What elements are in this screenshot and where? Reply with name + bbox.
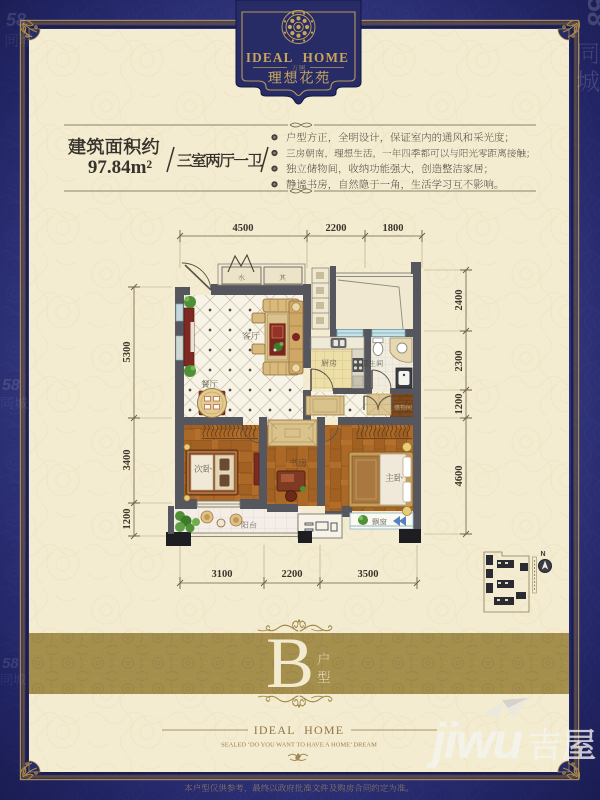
svg-text:58: 58 [2,377,20,394]
svg-text:2300: 2300 [454,351,465,372]
svg-text:5300: 5300 [122,342,133,363]
svg-text:jiwu: jiwu [426,713,523,769]
svg-text:N: N [540,551,545,558]
svg-text:3500: 3500 [358,569,379,580]
svg-text:1200: 1200 [122,509,133,530]
svg-text:SEALED ‘DO YOU WANT TO HAVE A: SEALED ‘DO YOU WANT TO HAVE A HOME’ DREA… [221,742,377,749]
svg-text:B: B [266,623,314,703]
svg-text:IDEAL HOME: IDEAL HOME [246,50,349,65]
svg-text:IDEAL HOME: IDEAL HOME [254,723,345,737]
svg-text:3100: 3100 [212,569,233,580]
svg-text:4500: 4500 [233,223,254,234]
svg-text:1800: 1800 [383,223,404,234]
svg-text:2200: 2200 [326,223,347,234]
svg-text:2400: 2400 [454,290,465,311]
svg-text:58: 58 [582,0,600,27]
svg-text:58: 58 [2,655,19,672]
svg-text:3400: 3400 [122,450,133,471]
svg-text:97.84m²: 97.84m² [88,157,153,178]
svg-text:58: 58 [6,10,26,30]
svg-text:4600: 4600 [454,466,465,487]
svg-text:2200: 2200 [282,569,303,580]
svg-text:1200: 1200 [454,394,465,415]
